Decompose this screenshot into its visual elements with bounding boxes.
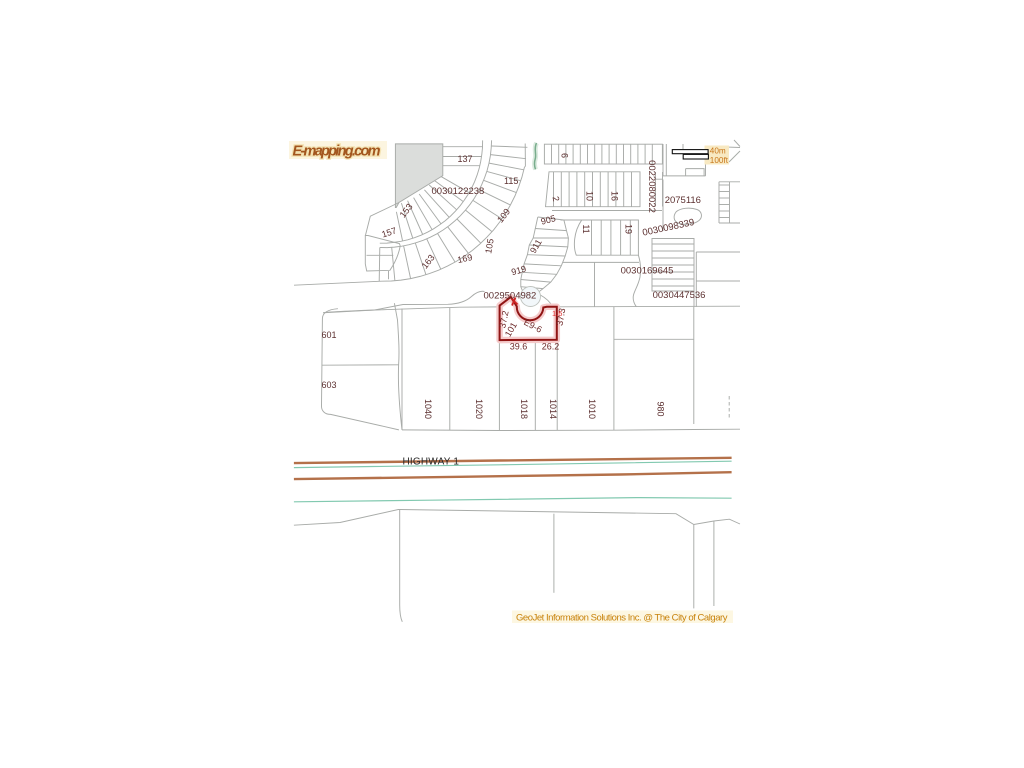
svg-text:10: 10: [585, 191, 595, 201]
svg-text:100ft: 100ft: [710, 156, 729, 165]
svg-text:980: 980: [656, 401, 666, 416]
svg-text:115: 115: [504, 176, 518, 186]
svg-text:0030169645: 0030169645: [621, 266, 674, 277]
svg-text:1020: 1020: [474, 399, 484, 419]
svg-text:137: 137: [458, 154, 473, 164]
svg-text:19: 19: [624, 224, 634, 234]
svg-text:2075116: 2075116: [665, 195, 701, 206]
svg-text:0029504982: 0029504982: [484, 291, 537, 302]
svg-text:0022080022: 0022080022: [646, 160, 657, 213]
svg-text:601: 601: [322, 330, 337, 340]
svg-text:1040: 1040: [423, 399, 433, 419]
svg-text:1010: 1010: [587, 399, 597, 419]
svg-text:6: 6: [560, 153, 570, 158]
svg-text:E-mapping.com: E-mapping.com: [293, 144, 381, 160]
svg-text:1014: 1014: [548, 399, 558, 419]
svg-text:40m: 40m: [710, 146, 726, 155]
svg-text:11: 11: [581, 224, 591, 233]
svg-text:1.5: 1.5: [552, 309, 562, 318]
svg-text:0030447536: 0030447536: [653, 290, 706, 301]
svg-text:0030122238: 0030122238: [432, 186, 485, 197]
svg-text:26.2: 26.2: [542, 342, 560, 352]
svg-text:1018: 1018: [519, 399, 529, 419]
svg-text:16: 16: [609, 191, 619, 201]
svg-text:603: 603: [322, 380, 337, 390]
svg-text:39.6: 39.6: [510, 342, 528, 352]
svg-text:HIGHWAY 1: HIGHWAY 1: [403, 457, 460, 468]
svg-text:GeoJet Information Solutions I: GeoJet Information Solutions Inc. @ The …: [516, 613, 728, 624]
